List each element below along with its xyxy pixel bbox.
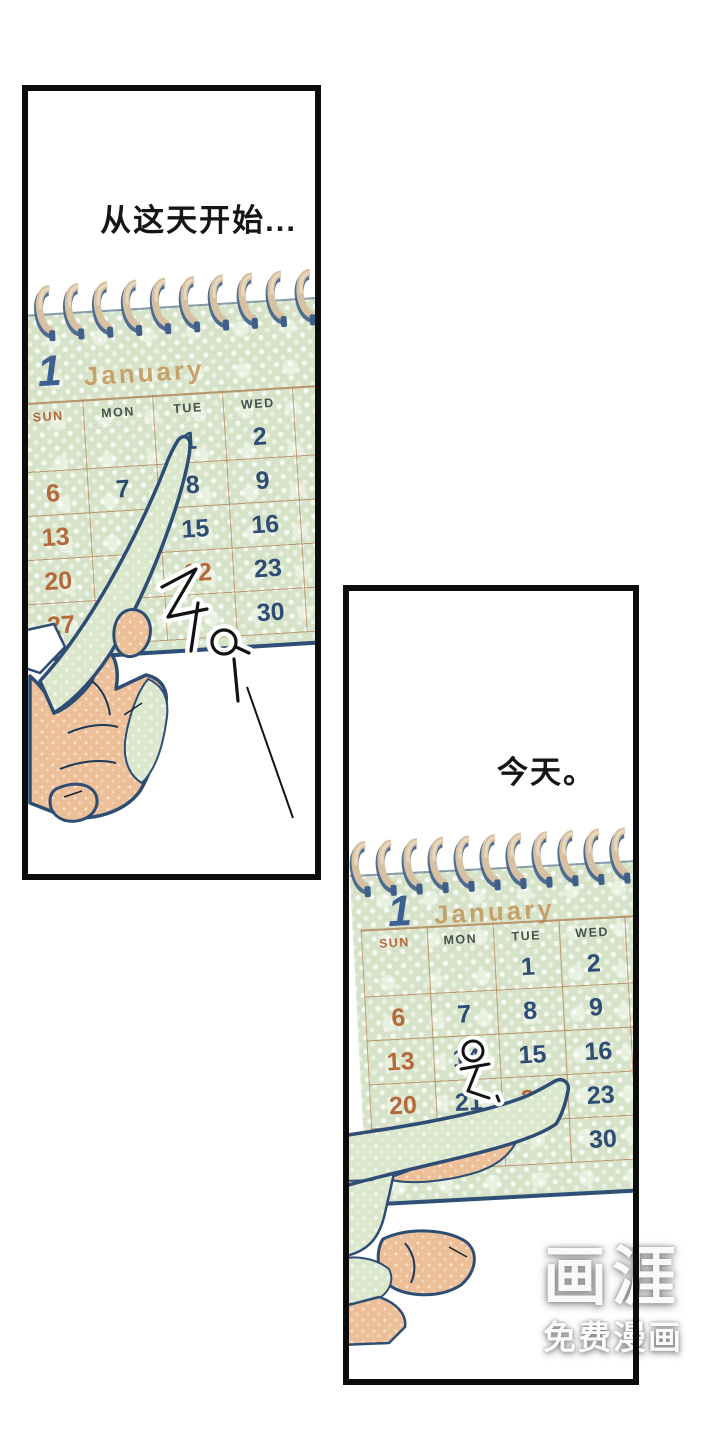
caption-panel-2: 今天。 [497, 747, 596, 792]
sfx-handwritten [349, 591, 633, 1379]
comic-panel-1: 从这天开始... 1 January [22, 85, 321, 880]
caption-panel-1: 从这天开始... [100, 195, 297, 240]
comic-panel-2: 今天。 1 January [343, 585, 639, 1385]
comic-page: 从这天开始... 1 January [0, 0, 719, 1440]
panel-border-segment [633, 1236, 639, 1376]
